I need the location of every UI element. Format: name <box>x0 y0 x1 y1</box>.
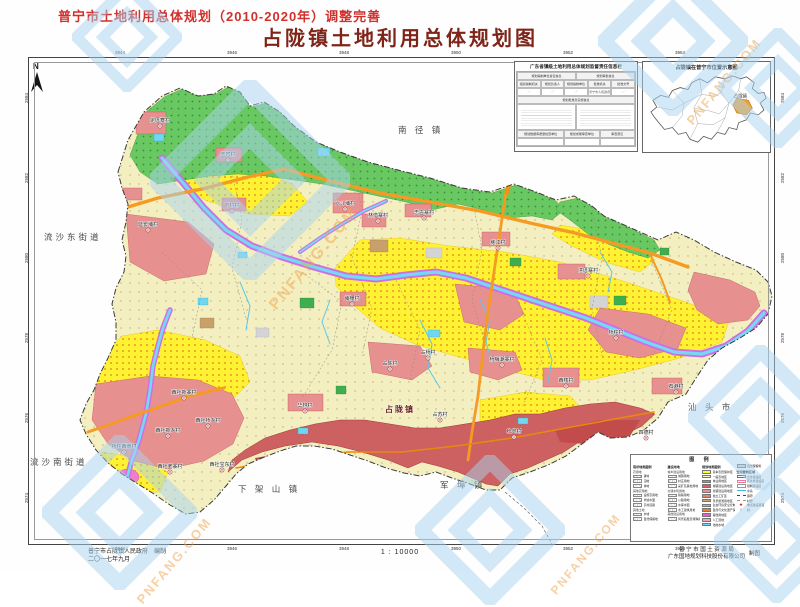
info-table-cell: 批准机关 <box>588 80 612 88</box>
legend-item-label: 水系 <box>747 489 753 493</box>
legend-title: 图 例 <box>633 456 769 463</box>
legend-item-label: 村镇建设用地区 <box>713 489 733 493</box>
legend-swatch <box>633 503 642 507</box>
legend-swatch <box>702 518 711 522</box>
legend-item-label: 村界 <box>747 499 753 503</box>
grid-label-left: 2580 <box>24 253 29 263</box>
legend-item: 采矿及其他用地 <box>668 484 701 488</box>
legend-col-current: 现状地类图例农用地耕地园地林地其他农用地设施农用地坑塘水面农村道路其他土地水域自… <box>633 463 666 527</box>
legend-item: 风景名胜及特殊用地 <box>668 517 701 521</box>
legend-item: 城镇建设用地区 <box>702 484 735 488</box>
legend-item-label: 风景旅游用地区 <box>713 499 733 503</box>
grid-label-right: 2584 <box>780 93 785 103</box>
legend-swatch <box>668 484 677 488</box>
legend-item-label: 坑塘水面 <box>644 498 656 502</box>
legend-item-label: 自然与文化遗产保护区 <box>713 508 735 512</box>
legend-item-label: 铁路用地 <box>678 493 690 497</box>
legend-item-label: 限制建设区 <box>747 484 761 488</box>
info-table-cell: 审查意见 <box>600 130 635 138</box>
legend-section-header: 规划地类图例 <box>702 464 735 469</box>
svg-text:占陇镇: 占陇镇 <box>734 92 748 99</box>
legend-swatch <box>633 484 642 488</box>
legend-item: 设施农用地 <box>633 493 666 497</box>
info-table-cell: ／ <box>564 88 588 96</box>
legend-item-label: 设施农用地 <box>644 493 658 497</box>
legend-item-label: 耕地 <box>644 474 650 478</box>
legend-item-label: 独立工矿区 <box>713 494 727 498</box>
info-table-cell <box>517 104 576 130</box>
legend-item-label: 公路用地 <box>678 498 690 502</box>
legend-section-header: 建设用地 <box>668 464 701 469</box>
legend-col-construction: 建设用地城乡建设用地城镇用地村庄用地采矿及其他用地交通水利用地铁路用地公路用地水… <box>668 463 701 527</box>
legend-swatch <box>737 475 746 479</box>
legend-swatch <box>702 489 711 493</box>
legend-item-label: 水库水面 <box>678 503 690 507</box>
grid-label-right: 2578 <box>780 333 785 343</box>
legend-swatch <box>702 484 711 488</box>
grid-label-left: 2584 <box>24 93 29 103</box>
legend-item: 风景旅游用地区 <box>702 499 735 503</box>
info-table-cell <box>564 138 599 146</box>
legend-item: 允许建设区 <box>737 475 770 479</box>
info-table-cell: 普宁市人民政府 <box>588 88 612 96</box>
legend-item-label: 允许建设区 <box>747 475 761 479</box>
legend-swatch <box>702 513 711 517</box>
grid-label-right: 2582 <box>780 173 785 183</box>
legend-col-planning: 规划地类图例基本农田保护区一般农地区林业用地区城镇建设用地区村镇建设用地区独立工… <box>702 463 735 527</box>
grid-label-left: 2576 <box>24 413 29 423</box>
legend-item: 林地 <box>633 484 666 488</box>
legend-swatch <box>702 494 711 498</box>
legend-item-label: 园地 <box>644 479 650 483</box>
legend-item: 园地 <box>633 479 666 483</box>
info-table-cell <box>576 104 635 130</box>
legend-group-header: 其他农用地 <box>633 489 666 493</box>
info-table-title: 广东省镇级土地利用总体规划监督责任信息栏 <box>516 64 636 70</box>
legend-swatch <box>702 470 711 474</box>
location-inset-title: 占陇镇在普宁市位置示意图 <box>643 64 770 71</box>
legend-line-sample <box>737 490 746 491</box>
grid-label-right: 2574 <box>780 493 785 503</box>
legend-item: 农村道路 <box>633 503 666 507</box>
legend-item: 耕地 <box>633 474 666 478</box>
legend-item: 水域 <box>633 512 666 516</box>
legend-item: 生态环境安全控制区 <box>702 503 735 507</box>
grid-label-left: 2578 <box>24 333 29 343</box>
legend-swatch <box>702 480 711 484</box>
legend-swatch <box>737 480 746 484</box>
legend-swatch <box>633 494 642 498</box>
info-table-cell: ／ <box>541 88 565 96</box>
grid-label-right: 2580 <box>780 253 785 263</box>
info-table-cell <box>517 138 564 146</box>
legend-item: 公路用地 <box>668 498 701 502</box>
legend-swatch <box>668 498 677 502</box>
legend-item-label: 风景名胜及特殊用地 <box>678 517 700 521</box>
page-title: 占陇镇土地利用总体规划图 <box>0 22 800 51</box>
legend-swatch <box>633 517 642 521</box>
legend-item: 自然与文化遗产保护区 <box>702 508 735 512</box>
legend-item-label: 城镇用地 <box>678 474 690 478</box>
legend-item: 自然保留地 <box>633 517 666 521</box>
grid-label-left: 2574 <box>24 493 29 503</box>
agency-org: 普 宁 市 国 土 资 源 局 <box>668 547 745 554</box>
legend-item: 自然保留地 <box>737 464 770 468</box>
legend-swatch <box>668 517 677 521</box>
legend-swatch <box>668 475 677 479</box>
legend-group-header: 交通水利用地 <box>668 489 701 493</box>
legend-item: 坑塘水面 <box>633 498 666 502</box>
legend-item: 水库水面 <box>668 503 701 507</box>
grid-label-left: 2582 <box>24 173 29 183</box>
legend-swatch <box>668 494 677 498</box>
legend-item: 陆地水域 <box>702 523 735 527</box>
legend-item: 有条件建设区 <box>737 479 770 483</box>
legend-group-header: 其他建设用地 <box>668 512 701 516</box>
legend-swatch <box>633 479 642 483</box>
info-table-cell: 批准文号 <box>611 80 635 88</box>
legend-swatch <box>668 503 677 507</box>
legend-item: 铁路用地 <box>668 493 701 497</box>
legend-item-label: 重点建设项目 <box>747 503 764 507</box>
legend-item: 其他用地区 <box>702 513 735 517</box>
legend-col-control: 自然保留地空间管制区域允许建设区有条件建设区限制建设区水系镇界村界★重点建设项目… <box>737 463 770 527</box>
info-table-cell: 规划编制单位责任信息 <box>517 72 576 80</box>
info-table-cell: 规划负责人 <box>541 80 565 88</box>
info-table-cell: 规划成果审查单位 <box>564 130 599 138</box>
legend-line-sample <box>737 495 746 496</box>
legend: 图 例 现状地类图例农用地耕地园地林地其他农用地设施农用地坑塘水面农村道路其他土… <box>630 454 772 542</box>
legend-item-label: 城镇建设用地区 <box>713 484 733 488</box>
legend-item-label: 有条件建设区 <box>747 479 764 483</box>
supervision-info-table: 广东省镇级土地利用总体规划监督责任信息栏 规划编制单位责任信息规划审批信息组织编… <box>514 61 638 152</box>
footer-agency: 普 宁 市 国 土 资 源 局 广东国地规划科技股份有限公司 制图 <box>668 547 760 561</box>
legend-swatch <box>633 498 642 502</box>
legend-item-label: 基本农田保护区 <box>713 470 733 474</box>
info-table-grid: 规划编制单位责任信息规划审批信息组织编制机关规划负责人规划编制单位批准机关批准文… <box>516 71 636 147</box>
legend-item-label: 林地 <box>644 484 650 488</box>
info-table-cell: ／ <box>611 88 635 96</box>
legend-symbol: ○ <box>737 508 746 512</box>
legend-line-sample <box>737 500 746 501</box>
legend-item-label: 生态环境安全控制区 <box>713 503 735 507</box>
legend-section-header: 空间管制区域 <box>737 469 770 474</box>
legend-item: 人工湿地 <box>702 518 735 522</box>
legend-item: 水系 <box>737 489 770 493</box>
legend-item: 独立工矿区 <box>702 494 735 498</box>
legend-swatch <box>702 475 711 479</box>
legend-item: 城镇用地 <box>668 474 701 478</box>
legend-item-label: 人工湿地 <box>713 518 725 522</box>
legend-item-label: 一般农地区 <box>713 475 727 479</box>
legend-item: 基本农田保护区 <box>702 470 735 474</box>
legend-item-label: 自然保留地 <box>747 464 761 468</box>
legend-item-label: 其他用地区 <box>713 513 727 517</box>
legend-group-header: 其他土地 <box>633 508 666 512</box>
legend-item-label: 镇界 <box>747 494 753 498</box>
legend-swatch <box>668 479 677 483</box>
legend-item-label: 林业用地区 <box>713 479 727 483</box>
legend-item: ○村 <box>737 508 770 512</box>
placeholder-lines <box>580 108 631 126</box>
legend-item-label: 水域 <box>644 512 650 516</box>
legend-item: 镇界 <box>737 494 770 498</box>
legend-swatch <box>737 464 746 468</box>
agency-company: 广东国地规划科技股份有限公司 <box>668 554 745 561</box>
legend-item-label: 自然保留地 <box>644 517 658 521</box>
location-inset-map: 占陇镇 <box>643 71 770 149</box>
info-table-cell: 规划批准及实施信息 <box>517 96 635 104</box>
grid-label-right: 2576 <box>780 413 785 423</box>
legend-item: 一般农地区 <box>702 475 735 479</box>
info-table-cell <box>600 138 635 146</box>
legend-swatch <box>702 523 711 527</box>
placeholder-lines <box>521 108 572 126</box>
legend-item-label: 采矿及其他用地 <box>678 484 698 488</box>
producer-date: 二〇一七年九月 <box>88 556 166 564</box>
info-table-cell: ／ <box>517 88 541 96</box>
legend-swatch <box>737 484 746 488</box>
legend-item: 村镇建设用地区 <box>702 489 735 493</box>
info-table-cell: 规划数据库质量检查单位 <box>517 130 564 138</box>
info-table-cell: 组织编制机关 <box>517 80 541 88</box>
legend-swatch <box>702 504 711 508</box>
agency-role: 制图 <box>749 551 760 558</box>
location-inset: 占陇镇在普宁市位置示意图 占陇镇 <box>642 61 771 153</box>
legend-item: 林业用地区 <box>702 479 735 483</box>
legend-item: 限制建设区 <box>737 484 770 488</box>
info-table-cell: 规划编制单位 <box>564 80 588 88</box>
legend-item-label: 陆地水域 <box>713 523 725 527</box>
legend-item-label: 农村道路 <box>644 503 656 507</box>
legend-section-header: 现状地类图例 <box>633 464 666 469</box>
legend-item-label: 村 <box>747 508 750 512</box>
info-table-cell: 规划审批信息 <box>576 72 635 80</box>
legend-item: 村庄用地 <box>668 479 701 483</box>
legend-swatch <box>633 475 642 479</box>
legend-swatch <box>702 499 711 503</box>
map-sheet: N 南 径 镇流沙东街道流沙南街道下 架 山 镇军 埠 镇汕 头 市 定厝寮村玉… <box>0 0 800 572</box>
legend-group-header: 城乡建设用地 <box>668 470 701 474</box>
legend-group-header: 农用地 <box>633 470 666 474</box>
legend-swatch <box>633 513 642 517</box>
legend-item-label: 村庄用地 <box>678 479 690 483</box>
legend-swatch <box>702 508 711 512</box>
